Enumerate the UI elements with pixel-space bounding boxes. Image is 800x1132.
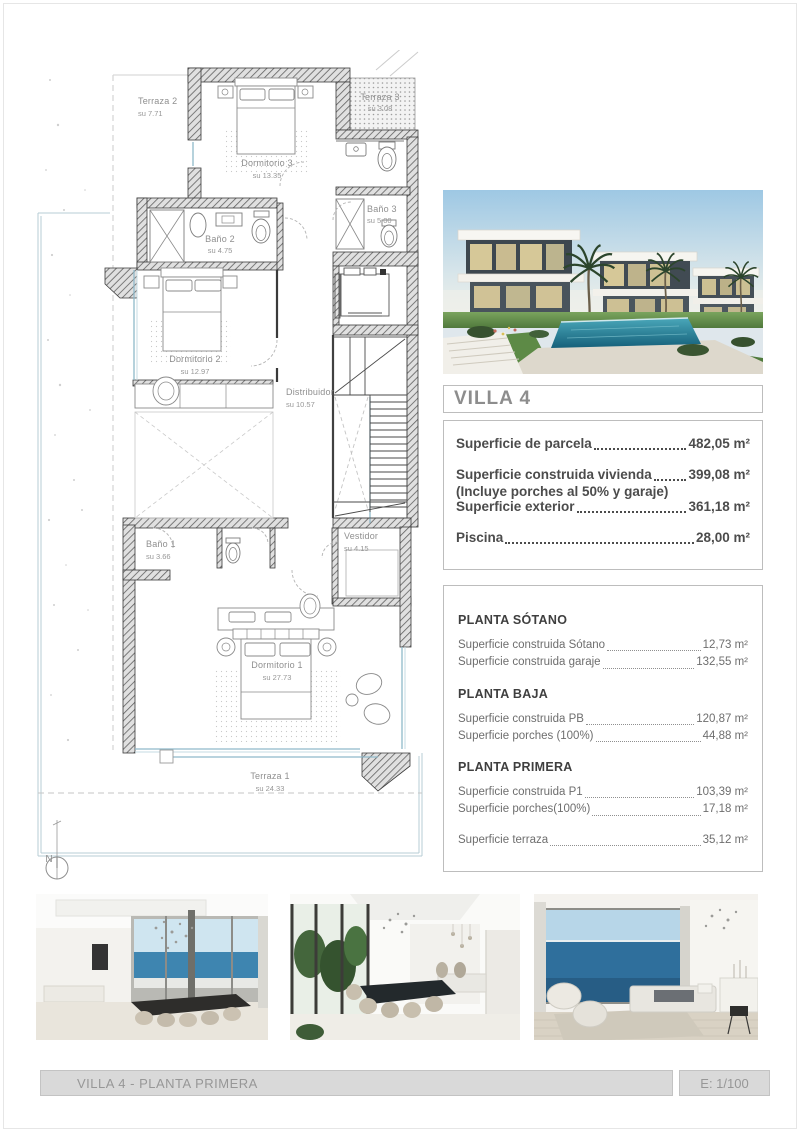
floor-heading: PLANTA PRIMERA: [458, 760, 748, 774]
floor-row: Superficie construida P1 103,39 m²: [458, 784, 748, 801]
room-area: su 4.75: [208, 246, 233, 255]
summary-row: Superficie construida vivienda 399,08 m²: [456, 467, 750, 484]
floor-row: Superficie construida PB 120,87 m²: [458, 711, 748, 728]
room-label: Terraza 2: [138, 96, 177, 106]
villa-middle: [593, 252, 701, 320]
compass-n-label: N: [45, 854, 52, 865]
room-area: su 3.08: [368, 104, 393, 113]
leader-dots: [654, 479, 687, 481]
bed-dorm2: [144, 268, 277, 366]
room-area: su 10.57: [286, 400, 315, 409]
villa-title-box: VILLA 4: [443, 385, 763, 413]
summary-label: Superficie exterior: [456, 499, 575, 516]
sketch-lines: [376, 50, 418, 76]
leader-dots: [603, 668, 695, 669]
leader-dots: [585, 797, 695, 798]
room-label: Terraza 3: [360, 92, 399, 102]
summary-value: 482,05 m²: [688, 436, 750, 453]
north-compass-icon: N: [45, 820, 68, 879]
floor-value: 103,39 m²: [696, 784, 748, 801]
room-area: su 7.71: [138, 109, 163, 118]
bath1-fixtures: [153, 528, 318, 596]
room-label: Baño 1: [146, 539, 176, 549]
floor-value: 132,55 m²: [696, 654, 748, 671]
floor-value: 120,87 m²: [696, 711, 748, 728]
floor-label: Superficie construida garaje: [458, 654, 601, 671]
floor-value: 17,18 m²: [703, 801, 748, 818]
footer-title-bar: VILLA 4 - PLANTA PRIMERA: [40, 1070, 673, 1096]
room-area: su 5.00: [367, 216, 392, 225]
room-area: su 13.35: [253, 171, 282, 180]
summary-row: Superficie exterior 361,18 m²: [456, 499, 750, 516]
leader-dots: [594, 448, 687, 450]
room-label: Baño 2: [205, 234, 235, 244]
room-area: su 4.15: [344, 544, 369, 553]
villa-title: VILLA 4: [454, 388, 531, 410]
summary-note: (Incluye porches al 50% y garaje): [456, 484, 750, 499]
leader-dots: [505, 542, 694, 544]
summary-value: 399,08 m²: [688, 467, 750, 484]
room-label: Dormitorio 1: [251, 660, 302, 670]
interior-photo-dining: [290, 894, 520, 1040]
summary-label: Superficie de parcela: [456, 436, 592, 453]
floor-row: Superficie porches (100%) 44,88 m²: [458, 728, 748, 745]
pool: [551, 318, 701, 348]
footer-scale: E: 1/100: [700, 1076, 748, 1091]
summary-value: 28,00 m²: [696, 530, 750, 547]
leader-dots: [577, 511, 687, 513]
terrace-post: [160, 750, 173, 763]
room-label: Dormitorio 2: [169, 354, 220, 364]
summary-value: 361,18 m²: [688, 499, 750, 516]
floor-row: Superficie terraza 35,12 m²: [458, 832, 748, 849]
room-label: Vestidor: [344, 531, 378, 541]
bath-corridor-fixtures: [336, 141, 404, 171]
floor-areas-box: PLANTA SÓTANO Superficie construida Sóta…: [443, 585, 763, 872]
villa-exterior-photo: [443, 190, 763, 374]
floor-label: Superficie construida Sótano: [458, 637, 605, 654]
interior-photo-living: [36, 894, 268, 1040]
leader-dots: [586, 724, 694, 725]
room-label: Dormitorio 3: [241, 158, 292, 168]
villa-render: [443, 190, 763, 374]
floor-label: Superficie terraza: [458, 832, 548, 849]
staircase: [333, 337, 407, 518]
floor-plan: Terraza 2 su 7.71 Dormitorio 3 su 13.35 …: [30, 50, 430, 880]
scan-speckles: [45, 79, 91, 741]
room-area: su 27.73: [263, 673, 292, 682]
leader-dots: [596, 741, 701, 742]
room-label: Baño 3: [367, 204, 397, 214]
floor-value: 35,12 m²: [703, 832, 748, 849]
villa-left: [458, 230, 584, 318]
footer-title: VILLA 4 - PLANTA PRIMERA: [77, 1076, 258, 1091]
floor-label: Superficie porches(100%): [458, 801, 590, 818]
room-area: su 3.66: [146, 552, 171, 561]
room-label: Distribuidor: [286, 387, 334, 397]
leader-dots: [550, 845, 700, 846]
summary-label: Piscina: [456, 530, 503, 547]
room-area: su 12.97: [181, 367, 210, 376]
summary-row: Superficie de parcela 482,05 m²: [456, 436, 750, 453]
floor-heading: PLANTA BAJA: [458, 687, 748, 701]
floor-row: Superficie porches(100%) 17,18 m²: [458, 801, 748, 818]
floor-value: 12,73 m²: [703, 637, 748, 654]
footer-scale-box: E: 1/100: [679, 1070, 770, 1096]
floor-label: Superficie construida PB: [458, 711, 584, 728]
floor-row: Superficie construida garaje 132,55 m²: [458, 654, 748, 671]
surface-summary-box: Superficie de parcela 482,05 m² Superfic…: [443, 420, 763, 570]
brochure-page: Terraza 2 su 7.71 Dormitorio 3 su 13.35 …: [0, 0, 800, 1132]
vanity-dorm1: [218, 594, 334, 630]
floor-value: 44,88 m²: [703, 728, 748, 745]
floor-label: Superficie construida P1: [458, 784, 583, 801]
summary-row: Piscina 28,00 m²: [456, 530, 750, 547]
floor-heading: PLANTA SÓTANO: [458, 613, 748, 627]
room-area: su 24.33: [256, 784, 285, 793]
closet-area: [135, 412, 273, 518]
interior-photo-bedroom: [534, 894, 758, 1040]
elevator: [335, 268, 389, 318]
leader-dots: [607, 650, 701, 651]
armchairs-dorm1: [346, 670, 392, 727]
room-label: Terraza 1: [250, 771, 289, 781]
summary-label: Superficie construida vivienda: [456, 467, 652, 484]
floor-row: Superficie construida Sótano 12,73 m²: [458, 637, 748, 654]
floor-label: Superficie porches (100%): [458, 728, 594, 745]
leader-dots: [592, 815, 700, 816]
